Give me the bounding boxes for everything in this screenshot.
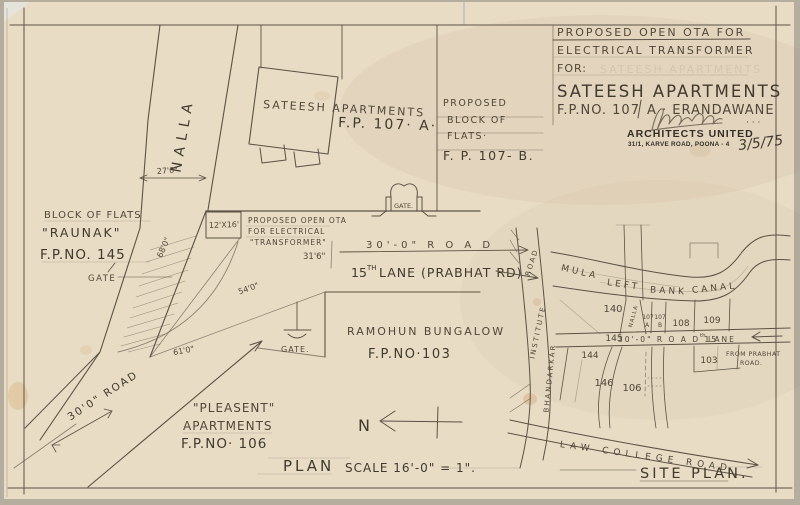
- ramohun-name: RAMOHUN BUNGALOW: [347, 325, 505, 338]
- plot-103: 103: [700, 356, 717, 366]
- erased-ghost-text: SATEESH APARTMENTS: [600, 63, 762, 76]
- ramohun-plotno: F.P.NO·103: [368, 347, 451, 362]
- from-prabhat2: ROAD.: [740, 360, 763, 367]
- road-30-top-label: 30'-0" R O A D: [366, 240, 494, 251]
- lane15-rest: LANE (PRABHAT RD): [379, 265, 523, 280]
- pb-line4: F. P. 107- B.: [443, 148, 534, 163]
- ota-note1: PROPOSED OPEN OTA: [248, 216, 347, 225]
- title-for: FOR:: [557, 62, 587, 75]
- north-label: N: [358, 416, 370, 435]
- ota-note3: "TRANSFORMER": [250, 238, 327, 247]
- plot-144: 144: [581, 351, 598, 361]
- plot-109: 109: [703, 316, 720, 326]
- plan-drawing-svg: PROPOSED OPEN OTA FOR ELECTRICAL TRANSFO…: [0, 0, 800, 505]
- stain: [314, 91, 330, 101]
- signature-dots: · · ·: [746, 118, 760, 128]
- plot-number: F.P.NO. 107: [557, 103, 640, 118]
- title-line2: ELECTRICAL TRANSFORMER: [557, 44, 755, 57]
- firm-name: ARCHITECTS UNITED: [627, 128, 754, 140]
- pb-line2: BLOCK OF: [447, 115, 507, 126]
- pb-line1: PROPOSED: [443, 98, 507, 109]
- stain: [533, 298, 541, 306]
- plot-106: 106: [622, 383, 641, 394]
- dim-27-label: 27'0": [157, 166, 179, 176]
- title-line1: PROPOSED OPEN OTA FOR: [557, 26, 745, 39]
- ota-size-label: 12'X16': [209, 220, 240, 230]
- site-plan-title: SITE PLAN.: [640, 466, 749, 482]
- raunak-line2: "RAUNAK": [42, 225, 121, 240]
- scanned-drawing-sheet: { "title_block": { "line1": "PROPOSED OP…: [0, 0, 800, 505]
- stain: [80, 345, 92, 355]
- pleasent-line3: F.P.NO· 106: [181, 436, 267, 452]
- plan-title: PLAN: [283, 457, 334, 475]
- firm-address: 31/1, KARVE ROAD, POONA - 4: [628, 141, 730, 148]
- gate-left-label: GATE: [88, 274, 116, 284]
- plot-140: 140: [603, 304, 622, 315]
- stain: [8, 382, 28, 410]
- plot-107a-top: 107: [642, 314, 654, 321]
- dim-316-label: 31'6": [303, 252, 326, 262]
- lane15-sup: TH: [366, 264, 377, 272]
- canal-word3: BANK: [650, 286, 687, 298]
- plot-145: 145: [605, 334, 622, 344]
- raunak-line1: BLOCK OF FLATS: [44, 210, 142, 221]
- site-road-30-sup: th: [700, 333, 706, 339]
- pb-line3: FLATS·: [447, 131, 488, 142]
- raunak-line3: F.P.NO. 145: [40, 247, 126, 263]
- client-name: SATEESH APARTMENTS: [557, 82, 782, 101]
- pleasent-block: "PLEASENT" APARTMENTS F.P.NO· 106: [181, 401, 275, 452]
- gate-top-label: GATE.: [394, 202, 413, 210]
- pleasent-line1: "PLEASENT": [193, 401, 275, 415]
- plot-108: 108: [672, 319, 689, 329]
- plot-107b-top: 107: [654, 314, 666, 321]
- pleasent-line2: APARTMENTS: [183, 419, 273, 433]
- lane15-num: 15: [351, 265, 367, 280]
- gate-mid-label: GATE.: [281, 345, 310, 354]
- from-prabhat1: FROM PRABHAT: [726, 351, 780, 358]
- ota-note2: FOR ELECTRICAL: [248, 227, 325, 236]
- plot-146: 146: [594, 378, 613, 389]
- site-road-30-rest: LANE: [708, 335, 736, 344]
- plot-107b-bot: B: [658, 322, 662, 329]
